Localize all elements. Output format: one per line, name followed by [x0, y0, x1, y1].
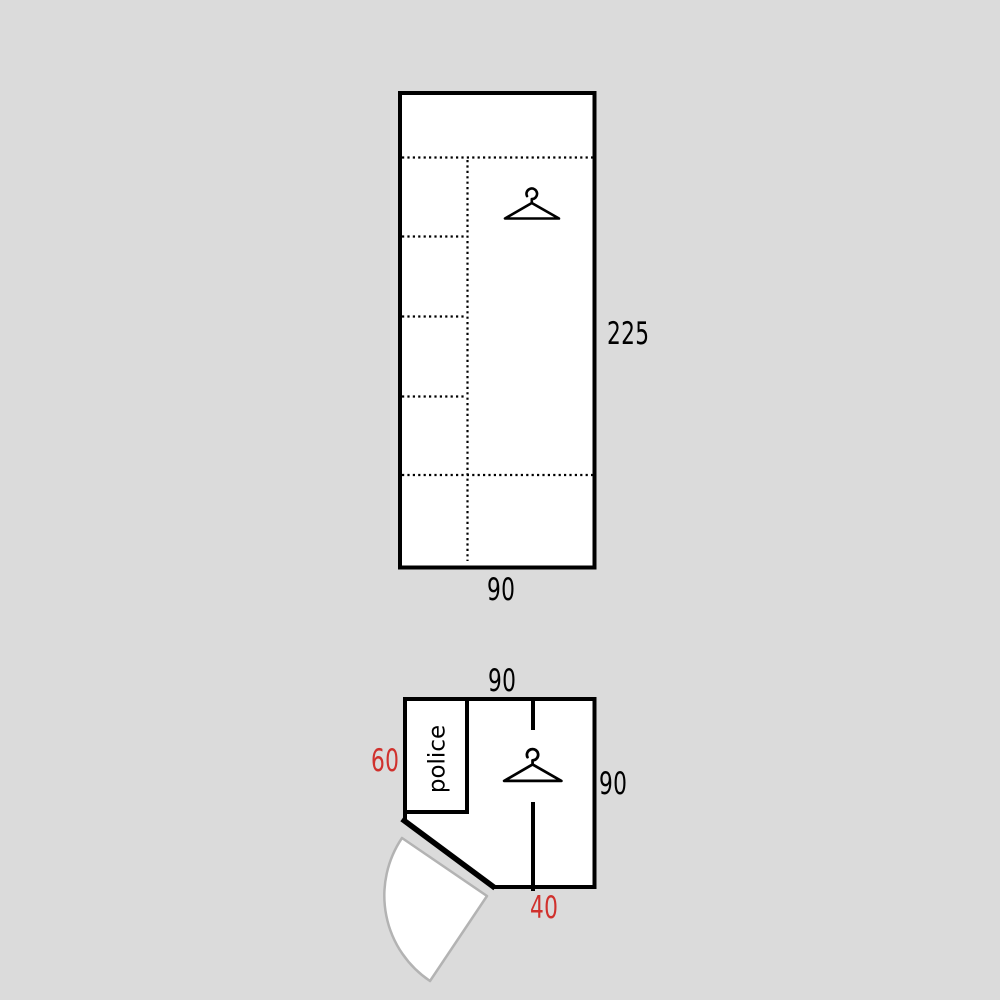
plan-view: [384, 697, 596, 981]
front-height-dimension: 225: [607, 319, 649, 350]
wardrobe-outline: [400, 93, 595, 568]
plan-shelf-depth-dimension: 60: [371, 746, 399, 777]
plan-depth-dimension: 90: [599, 769, 627, 800]
front-elevation: [400, 93, 595, 568]
drawing-lines: [0, 0, 1000, 1000]
front-width-dimension: 90: [487, 575, 515, 606]
wardrobe-technical-drawing: 225 90 90 60 90 40 police: [0, 0, 1000, 1000]
plan-width-dimension: 90: [488, 666, 516, 697]
plan-door-clearance-dimension: 40: [530, 893, 558, 924]
shelf-compartment-label: police: [427, 725, 450, 793]
